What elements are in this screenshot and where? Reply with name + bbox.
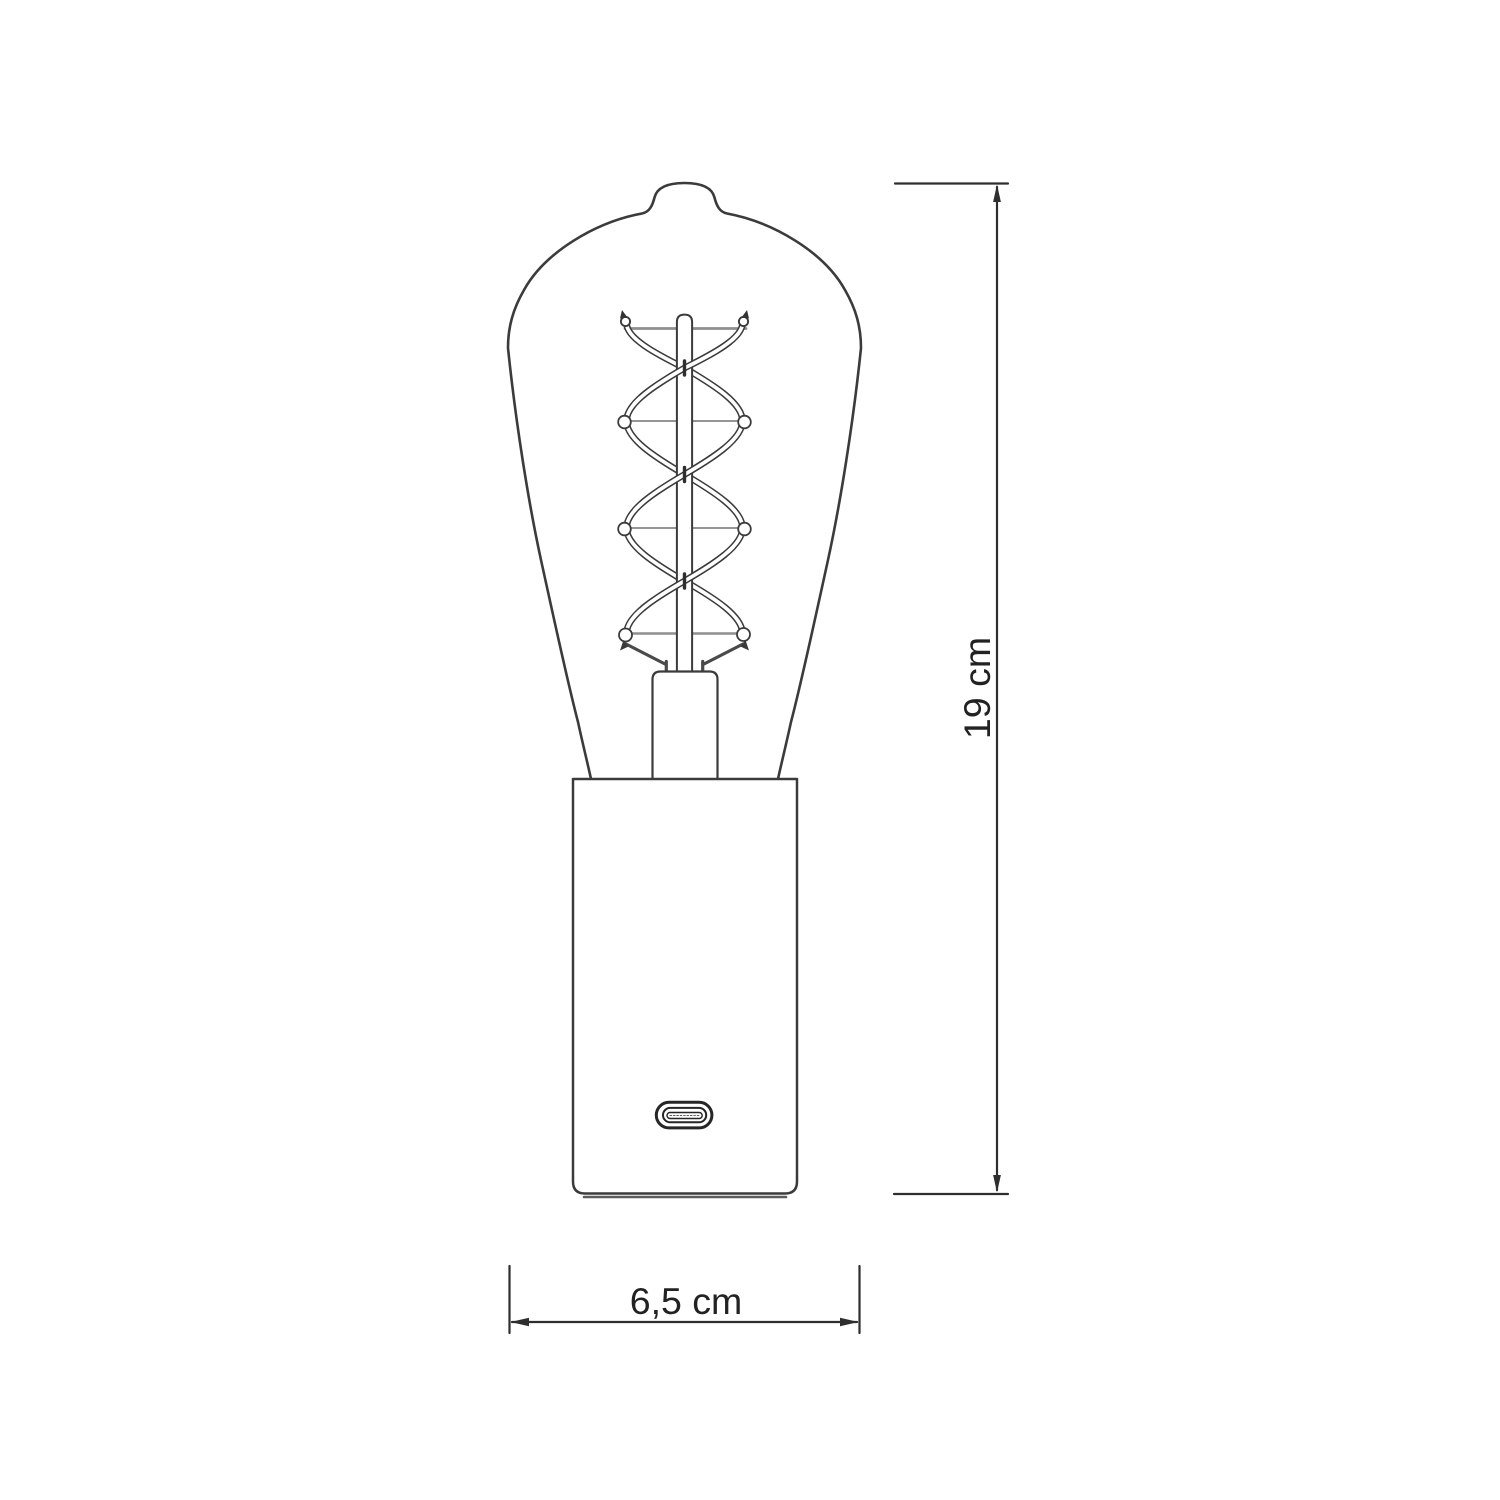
svg-text:19 cm: 19 cm [956, 637, 998, 739]
svg-text:6,5 cm: 6,5 cm [630, 1280, 743, 1322]
